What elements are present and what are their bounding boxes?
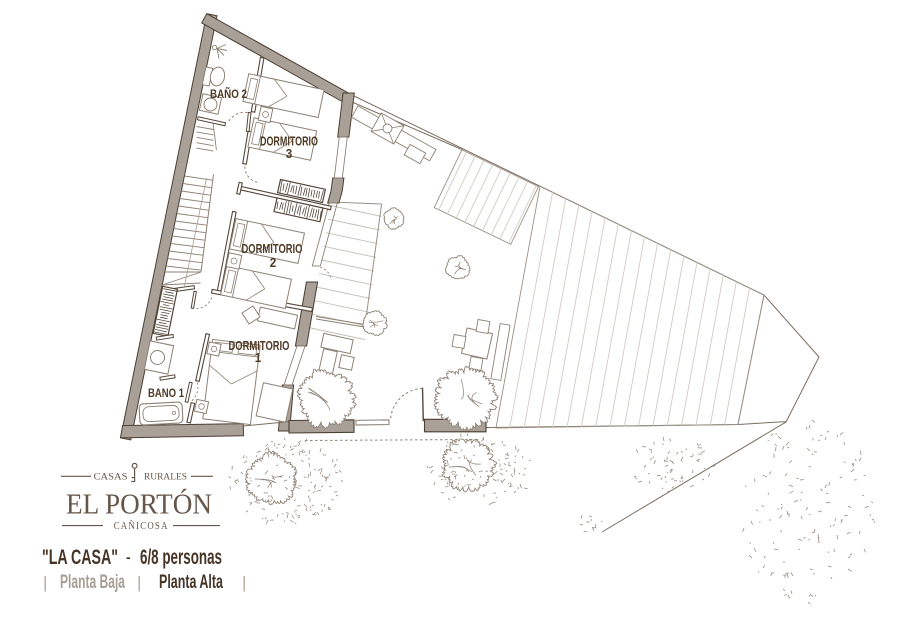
svg-text:CAÑICOSA: CAÑICOSA [114, 520, 169, 532]
svg-text:6/8 personas: 6/8 personas [140, 546, 222, 569]
svg-text:"LA CASA": "LA CASA" [42, 546, 118, 569]
svg-text:|: | [137, 573, 141, 592]
svg-text:Planta Baja: Planta Baja [60, 572, 125, 593]
svg-text:BAÑO 2: BAÑO 2 [210, 88, 247, 101]
svg-text:|: | [242, 573, 246, 592]
svg-text:EL PORTÓN: EL PORTÓN [66, 488, 212, 521]
svg-text:3: 3 [286, 147, 293, 161]
svg-text:-: - [126, 549, 131, 565]
svg-text:|: | [43, 573, 47, 592]
svg-text:2: 2 [270, 256, 277, 270]
svg-text:RURALES: RURALES [144, 473, 187, 483]
svg-text:1: 1 [255, 351, 262, 365]
svg-text:BANO 1: BANO 1 [148, 388, 184, 400]
svg-text:Planta Alta: Planta Alta [159, 572, 223, 593]
svg-text:CASAS: CASAS [94, 473, 128, 483]
svg-text:DORMITORIO: DORMITORIO [242, 242, 303, 256]
svg-text:DORMITORIO: DORMITORIO [260, 134, 318, 148]
